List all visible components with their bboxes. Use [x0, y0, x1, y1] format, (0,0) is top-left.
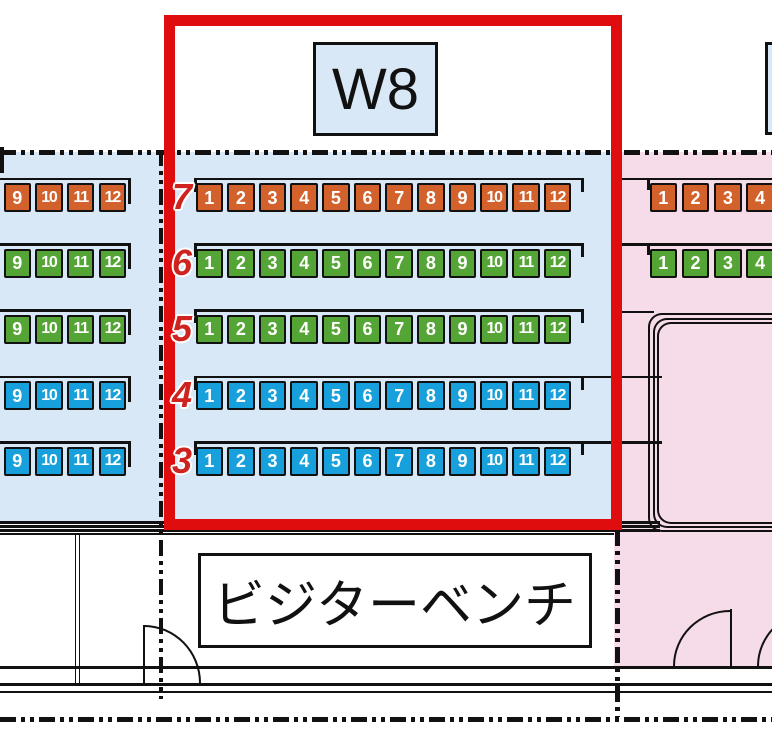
- boundary-line-bottom: [0, 717, 772, 722]
- row-bar-cap: [128, 309, 131, 335]
- visitor-bench-box: ビジターベンチ: [198, 553, 592, 648]
- seat-2[interactable]: 2: [682, 249, 710, 278]
- wall-end-mark: [0, 147, 4, 173]
- seat-map: W8 9101112712345678910111212349101112612…: [0, 0, 772, 756]
- seat-10[interactable]: 10: [35, 447, 63, 476]
- corridor-wall-line: [75, 533, 77, 683]
- row-bench-left: [0, 243, 131, 246]
- seat-11[interactable]: 11: [67, 315, 95, 344]
- seat-3[interactable]: 3: [714, 249, 742, 278]
- seat-12[interactable]: 12: [99, 315, 127, 344]
- visitor-bench-label: ビジターベンチ: [213, 563, 576, 638]
- seat-12[interactable]: 12: [99, 249, 127, 278]
- row-bar-cap: [128, 243, 131, 269]
- seat-2[interactable]: 2: [682, 183, 710, 212]
- row-bench-right: [621, 243, 772, 246]
- seat-11[interactable]: 11: [67, 183, 95, 212]
- seat-3[interactable]: 3: [714, 183, 742, 212]
- row-number-4: 4: [168, 377, 196, 413]
- seat-9[interactable]: 9: [4, 381, 32, 410]
- selected-section-highlight[interactable]: [164, 15, 622, 530]
- seat-9[interactable]: 9: [4, 447, 32, 476]
- seat-9[interactable]: 9: [4, 249, 32, 278]
- seat-4[interactable]: 4: [746, 183, 772, 212]
- row-bench-right: [621, 178, 772, 181]
- seat-1[interactable]: 1: [650, 183, 678, 212]
- row-bar-cap: [128, 441, 131, 467]
- field-wall-line: [0, 666, 772, 669]
- section-divider-left: [159, 150, 164, 699]
- row-bar-cap: [128, 376, 131, 402]
- seat-4[interactable]: 4: [746, 249, 772, 278]
- adjacent-section-label-box[interactable]: [765, 42, 772, 135]
- row-bench-left: [0, 441, 131, 444]
- walkway-line: [0, 533, 614, 536]
- door-swing-arc: [144, 625, 201, 683]
- row-bar-cap: [128, 178, 131, 204]
- row-bench-left: [0, 376, 131, 379]
- seat-10[interactable]: 10: [35, 183, 63, 212]
- row-number-3: 3: [168, 443, 196, 479]
- seat-9[interactable]: 9: [4, 183, 32, 212]
- seat-10[interactable]: 10: [35, 315, 63, 344]
- field-wall-line: [0, 683, 772, 686]
- section-divider-right: [615, 530, 620, 717]
- field-wall-line: [0, 691, 772, 693]
- seat-12[interactable]: 12: [99, 447, 127, 476]
- row-bench-left: [0, 178, 131, 181]
- seat-10[interactable]: 10: [35, 249, 63, 278]
- row-step-line: [620, 311, 654, 314]
- seat-12[interactable]: 12: [99, 183, 127, 212]
- seat-11[interactable]: 11: [67, 447, 95, 476]
- row-number-5: 5: [168, 311, 196, 347]
- seat-9[interactable]: 9: [4, 315, 32, 344]
- seat-11[interactable]: 11: [67, 249, 95, 278]
- row-number-6: 6: [168, 245, 196, 281]
- seat-1[interactable]: 1: [650, 249, 678, 278]
- row-bench-left: [0, 309, 131, 312]
- seat-10[interactable]: 10: [35, 381, 63, 410]
- dugout-wall-inner: [657, 322, 772, 524]
- corridor-wall-line: [79, 533, 81, 683]
- row-number-7: 7: [168, 179, 196, 215]
- seat-12[interactable]: 12: [99, 381, 127, 410]
- seat-11[interactable]: 11: [67, 381, 95, 410]
